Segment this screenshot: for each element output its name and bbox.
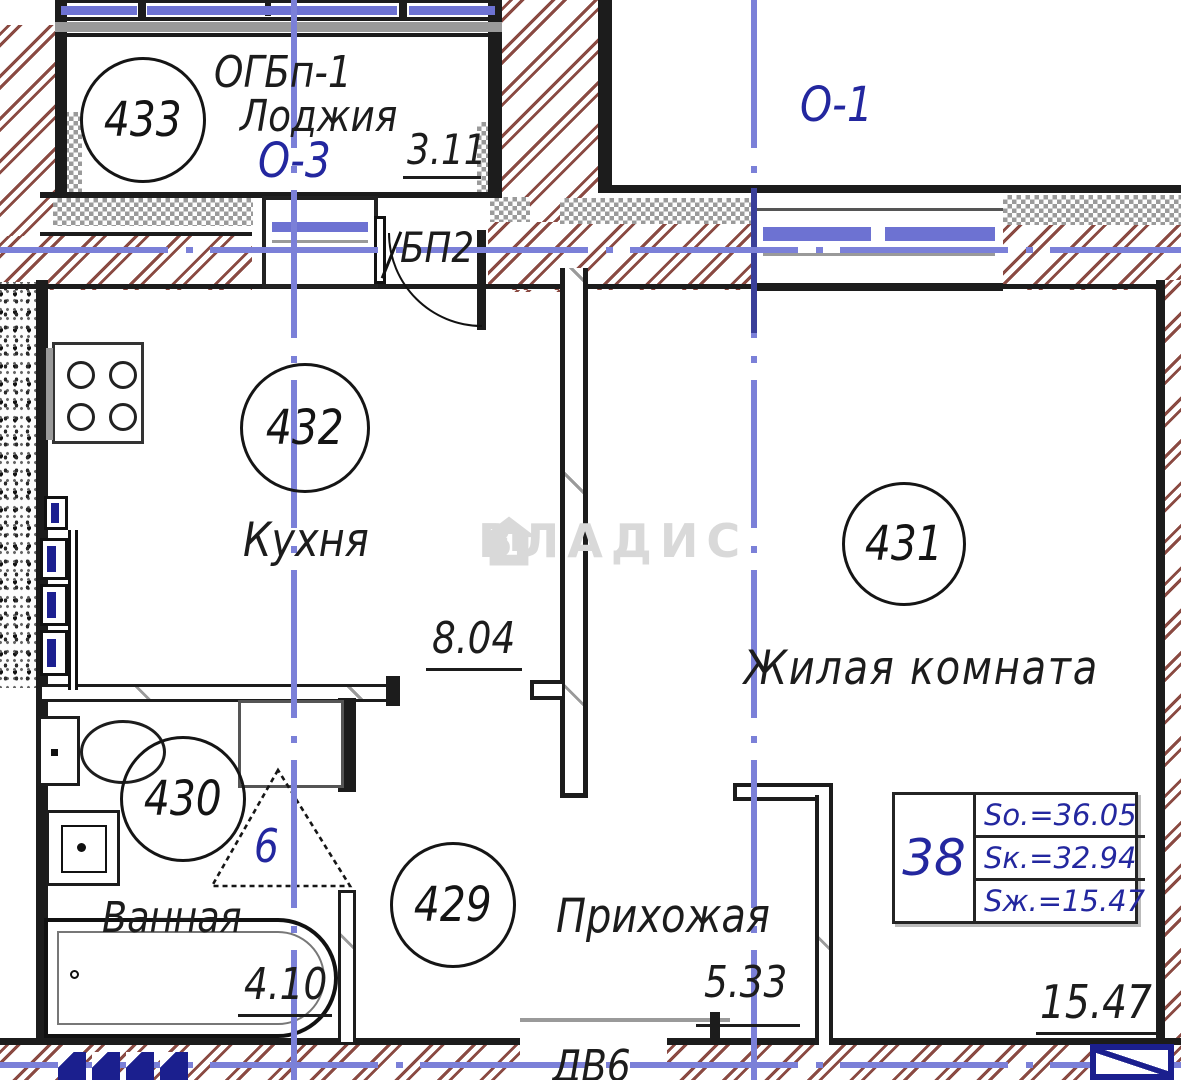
floor-plan: 1 ВЛАДИС 433 432 431 430 429 ОГБп-1 Лодж… bbox=[0, 0, 1181, 1080]
stove-side-strip bbox=[46, 348, 53, 440]
wall-hatch-top-center-pier bbox=[488, 222, 758, 290]
insulation-door-pier bbox=[490, 197, 530, 222]
area-usable: Sк.=32.94 bbox=[973, 835, 1145, 878]
sink-tap-tick-3 bbox=[36, 866, 46, 876]
entrance-door-label: ДВ6 bbox=[552, 1044, 631, 1080]
balcony-door-label: БП2 bbox=[400, 226, 474, 270]
right-exterior-wall bbox=[1156, 280, 1165, 1040]
dim-loggia: 3.11 bbox=[407, 128, 486, 172]
axis-line-horizontal-top bbox=[0, 247, 1181, 253]
dim-kitchen: 8.04 bbox=[432, 616, 515, 662]
dim-living: 15.47 bbox=[1040, 978, 1152, 1026]
apartment-number: 38 bbox=[895, 795, 973, 921]
wall-hatch-right bbox=[1163, 280, 1181, 1080]
cutoff-symbol-3 bbox=[126, 1052, 154, 1080]
entrance-threshold bbox=[520, 1018, 730, 1022]
insulation-left-sill bbox=[53, 198, 253, 226]
dim-bathroom-underline bbox=[238, 1014, 332, 1017]
cutoff-symbol-4 bbox=[160, 1052, 188, 1080]
area-table: 38 Sо.=36.05 Sк.=32.94 Sж.=15.47 bbox=[892, 792, 1138, 924]
cutoff-symbol-1 bbox=[58, 1052, 86, 1080]
room-number-circle-433: 433 bbox=[80, 57, 206, 183]
room-number-circle-432: 432 bbox=[240, 363, 370, 493]
sink-icon bbox=[46, 810, 120, 886]
toilet-tank-icon bbox=[38, 716, 80, 786]
sill-line bbox=[40, 232, 252, 236]
insulation-top-right bbox=[1003, 195, 1181, 225]
dim-loggia-underline bbox=[403, 176, 481, 179]
bathroom-door-mark: 6 bbox=[254, 822, 279, 870]
room-label-hallway: Прихожая bbox=[556, 892, 770, 941]
shaft-speckle-left bbox=[0, 282, 36, 688]
loggia-glazing bbox=[55, 0, 502, 40]
watermark-brand: ВЛАДИС bbox=[478, 514, 748, 568]
kitchen-window bbox=[262, 196, 378, 288]
wall-kitchen-tab bbox=[530, 680, 562, 700]
loggia2-floor-line bbox=[598, 185, 1181, 193]
room-number-circle-431: 431 bbox=[842, 482, 966, 606]
watermark: 1 ВЛАДИС bbox=[478, 506, 758, 576]
stove-icon bbox=[52, 342, 144, 444]
plumbing-stack-icon bbox=[38, 494, 82, 694]
axis-label-o3: О-3 bbox=[258, 136, 331, 186]
sink-tap-tick-1 bbox=[36, 818, 46, 828]
wall-hallway-living-side bbox=[815, 795, 833, 1045]
bottom-wall-line-left bbox=[0, 1038, 520, 1045]
area-total: Sо.=36.05 bbox=[973, 795, 1145, 835]
dim-kitchen-underline bbox=[426, 668, 522, 671]
bathroom-wall-cap bbox=[386, 676, 400, 706]
room-label-living: Жилая комната bbox=[744, 644, 1099, 693]
room-number-circle-429: 429 bbox=[390, 842, 516, 968]
room-number-circle-430: 430 bbox=[120, 736, 246, 862]
dim-hallway: 5.33 bbox=[704, 960, 787, 1006]
insulation-center-pier bbox=[560, 198, 752, 224]
wall-hatch-top-left-corner bbox=[0, 25, 55, 237]
room-label-bathroom: Ванная bbox=[102, 896, 242, 941]
sink-tap-tick-2 bbox=[36, 842, 46, 852]
axis-line-vertical-right-dark bbox=[751, 188, 757, 333]
wall-hatch-top-right bbox=[1000, 225, 1181, 290]
cutoff-symbol-right bbox=[1090, 1044, 1174, 1080]
loggia-window-type-label: ОГБп-1 bbox=[214, 50, 352, 96]
dim-bathroom: 4.10 bbox=[244, 962, 327, 1008]
bathroom-right-wall bbox=[338, 890, 356, 1042]
loggia2-left-wall bbox=[598, 0, 612, 192]
area-living: Sж.=15.47 bbox=[973, 878, 1145, 921]
dim-hallway-underline bbox=[696, 1024, 800, 1027]
room-label-kitchen: Кухня bbox=[243, 516, 369, 565]
axis-label-o1: О-1 bbox=[800, 80, 873, 130]
cutoff-symbol-2 bbox=[92, 1052, 120, 1080]
dim-living-underline bbox=[1036, 1032, 1164, 1035]
